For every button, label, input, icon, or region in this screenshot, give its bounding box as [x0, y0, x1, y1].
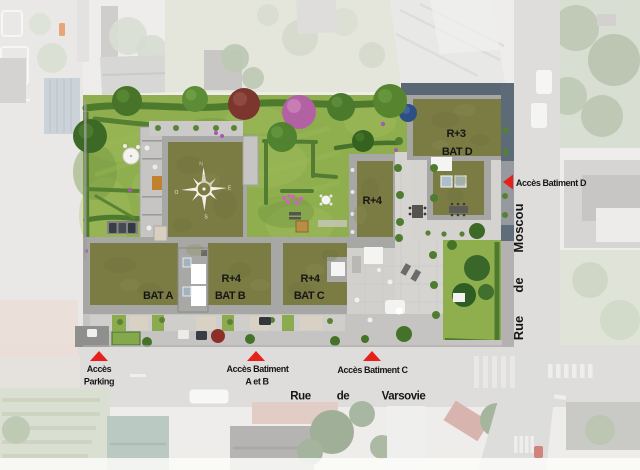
- svg-text:de: de: [337, 391, 350, 403]
- svg-text:BAT D: BAT D: [442, 146, 473, 158]
- svg-text:BAT A: BAT A: [143, 290, 173, 302]
- svg-text:Varsovie: Varsovie: [382, 391, 426, 403]
- svg-text:Rue: Rue: [290, 391, 310, 403]
- svg-text:R+3: R+3: [447, 128, 466, 140]
- svg-text:BAT B: BAT B: [215, 290, 246, 302]
- svg-text:Accès Batiment C: Accès Batiment C: [337, 365, 408, 375]
- svg-text:R+4: R+4: [301, 273, 321, 285]
- svg-text:Rue: Rue: [511, 316, 526, 341]
- svg-text:de: de: [511, 277, 526, 292]
- svg-text:Accès Batiment: Accès Batiment: [227, 364, 289, 374]
- svg-text:R+4: R+4: [363, 195, 383, 207]
- svg-text:Accès Batiment D: Accès Batiment D: [516, 178, 587, 188]
- svg-text:O: O: [175, 190, 179, 196]
- svg-text:A et B: A et B: [245, 377, 269, 387]
- svg-text:Parking: Parking: [84, 377, 114, 387]
- svg-text:Accès: Accès: [87, 364, 112, 374]
- svg-text:Moscou: Moscou: [511, 203, 526, 252]
- svg-text:R+4: R+4: [222, 273, 242, 285]
- svg-text:BAT C: BAT C: [294, 290, 325, 302]
